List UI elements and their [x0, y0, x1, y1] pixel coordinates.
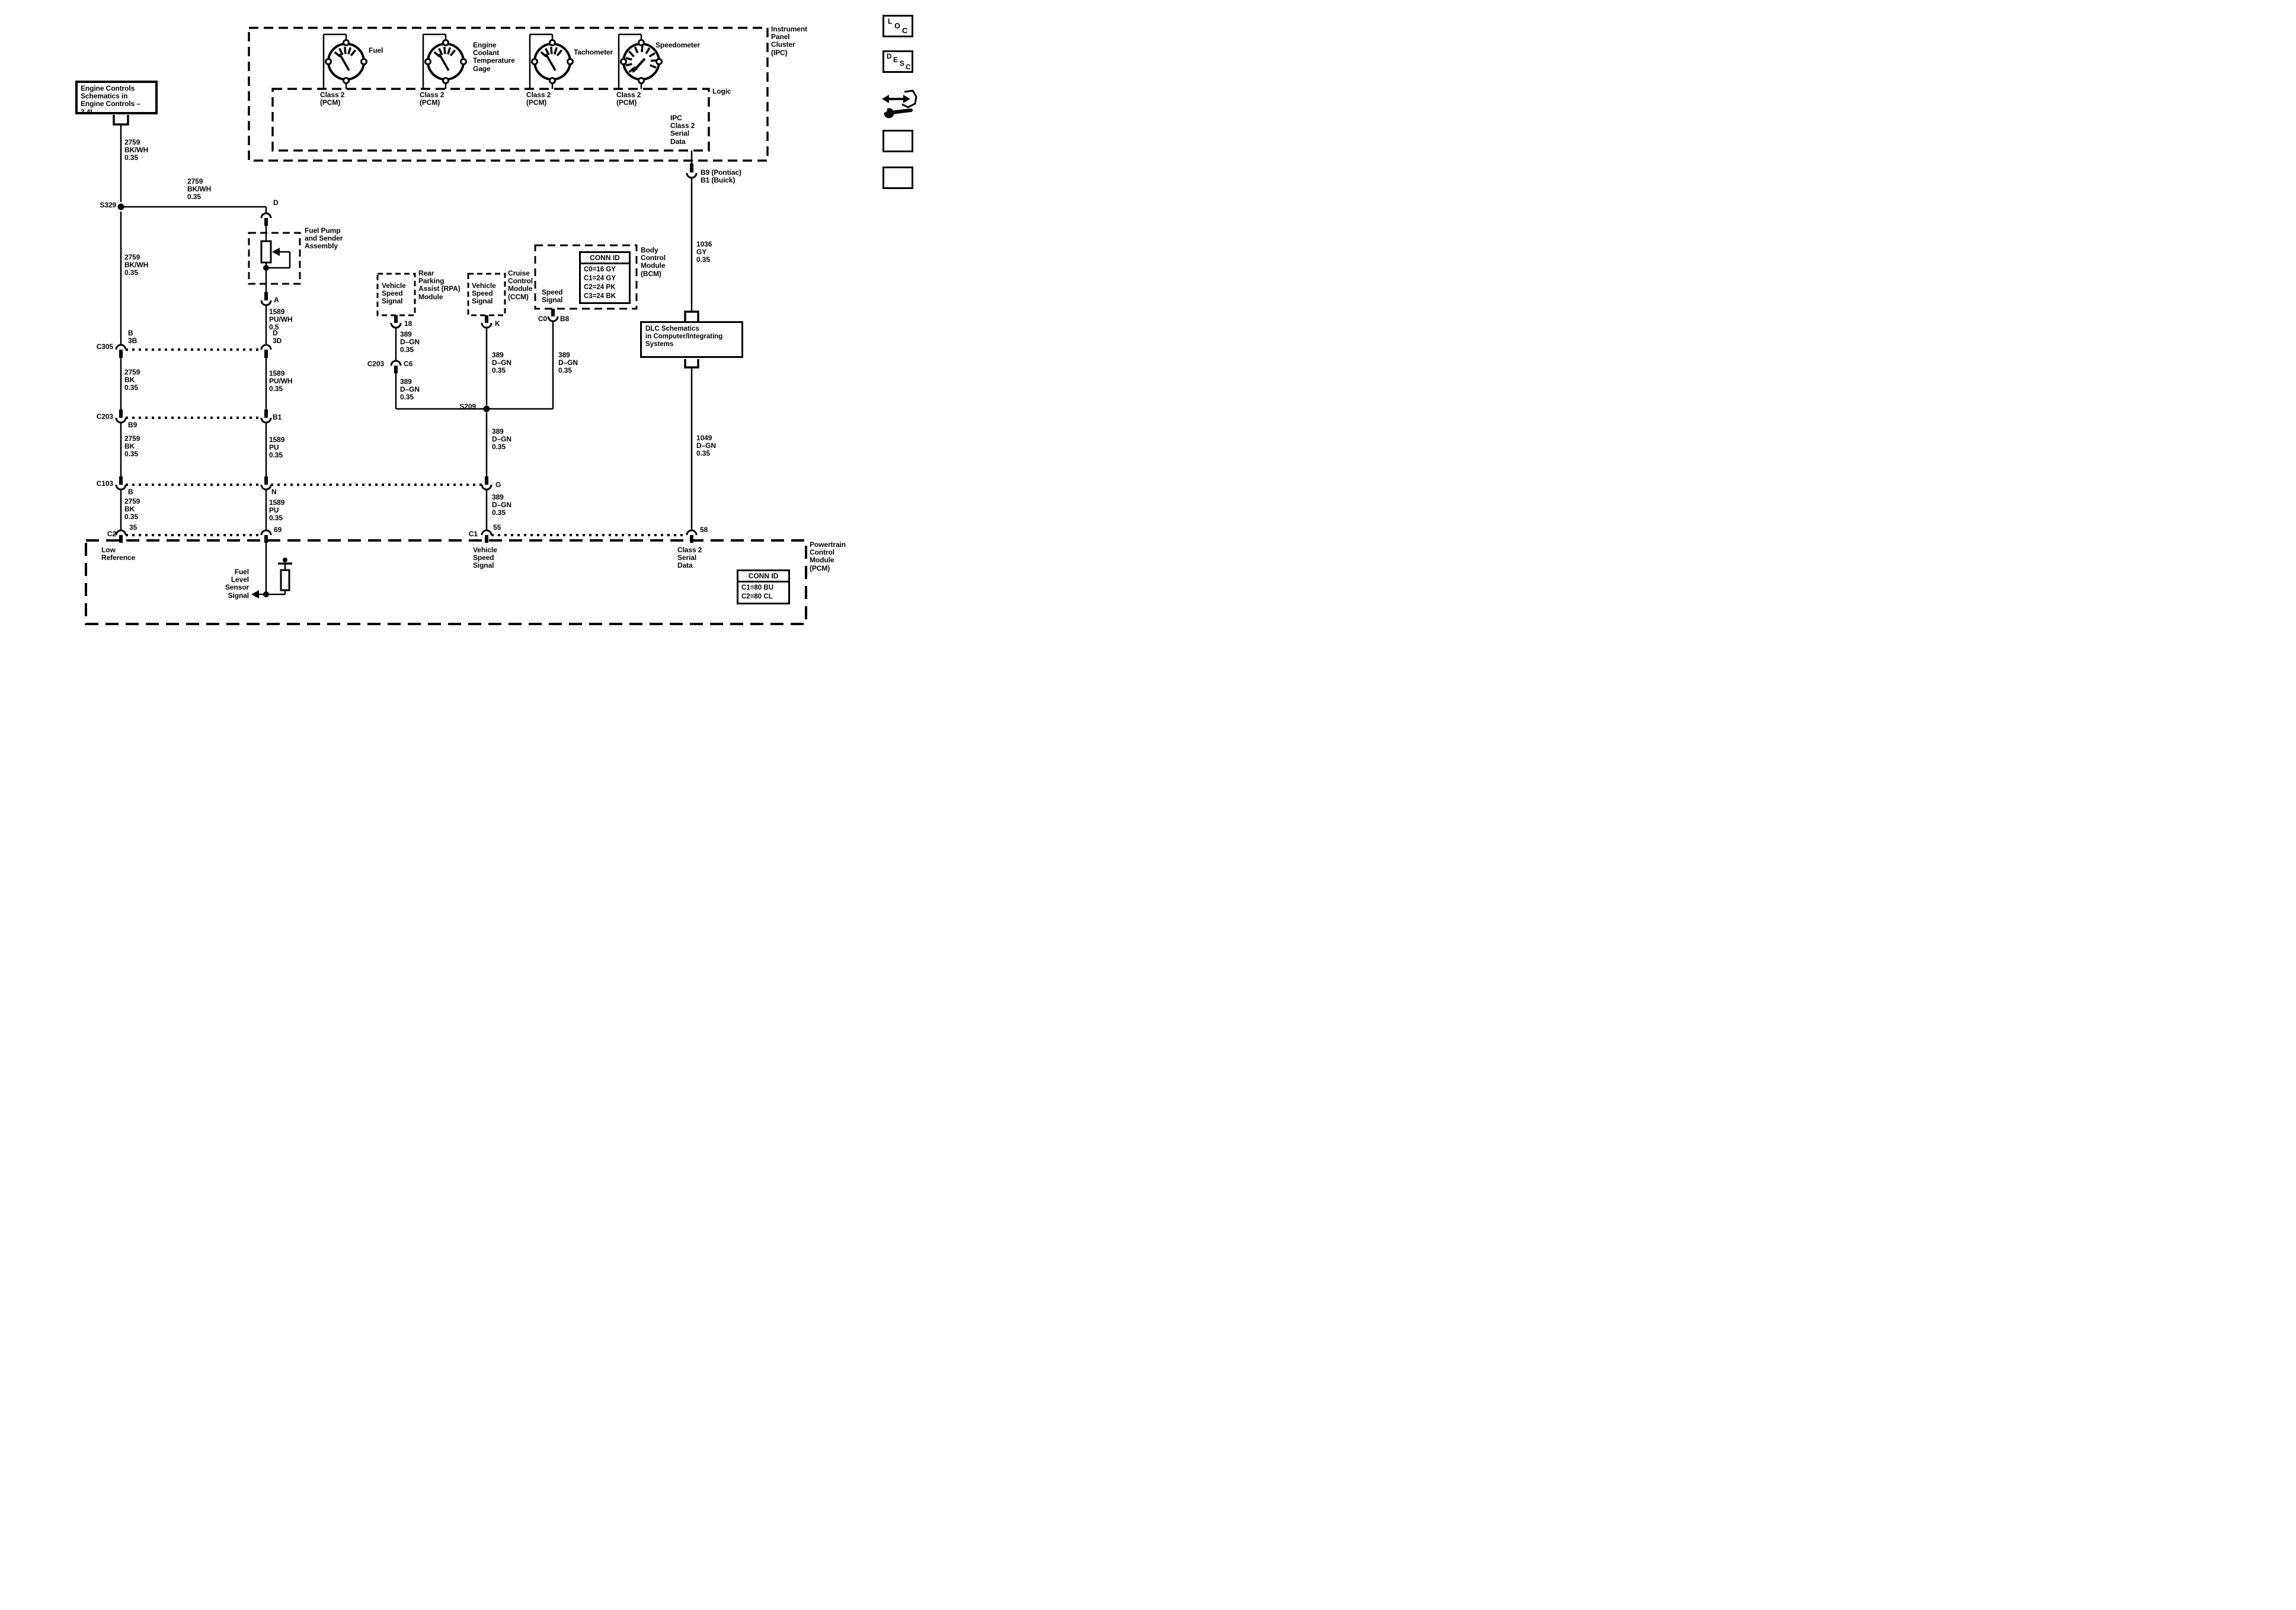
- ipc-title-label: Instrument Panel Cluster (IPC): [771, 25, 807, 57]
- nav-wrench-arrow-icon[interactable]: [881, 91, 916, 119]
- c1-connector-label: C1: [454, 530, 478, 538]
- wire-389-label-b8: 389 D–GN 0.35: [558, 351, 578, 375]
- c103-right-pin-label: N: [271, 488, 277, 496]
- wire-389-label-k: 389 D–GN 0.35: [492, 351, 511, 375]
- loc-button[interactable]: L O C: [882, 15, 913, 37]
- loc-letter-c: C: [902, 27, 907, 34]
- wire-2759-bk-label-1: 2759 BK 0.35: [124, 369, 140, 392]
- loc-letter-l: L: [888, 18, 892, 25]
- ect-gauge-label: Engine Coolant Temperature Gage: [473, 41, 515, 73]
- bcm-conn-id-title: CONN ID: [581, 253, 629, 264]
- wire-2759-bkwh-label-3: 2759 BK/WH 0.35: [124, 254, 148, 277]
- fuel-pump-box: [249, 233, 300, 284]
- wire-1036-label: 1036 GY 0.35: [696, 241, 712, 264]
- ccm-module-label: Cruise Control Module (CCM): [508, 270, 533, 301]
- fuel-pump-label: Fuel Pump and Sender Assembly: [305, 227, 343, 251]
- bcm-conn-id-rows: C0=16 GY C1=24 GY C2=24 PK C3=24 BK: [581, 264, 629, 302]
- wire-1589-pu-label-1: 1589 PU 0.35: [269, 436, 284, 460]
- engine-controls-ref-label: Engine Controls Schematics in Engine Con…: [81, 85, 152, 116]
- pcm-conn-id-title: CONN ID: [738, 571, 788, 582]
- wire-2759-bkwh-label-1: 2759 BK/WH 0.35: [124, 139, 148, 162]
- fuel-gauge-icon: [326, 40, 367, 84]
- c203-right-pin-label: B1: [273, 414, 282, 421]
- wire-2759-bk-label-3: 2759 BK 0.35: [124, 498, 140, 521]
- pin-b8-label: B8: [560, 315, 569, 323]
- wire-389-label-18: 389 D–GN 0.35: [400, 331, 420, 354]
- class2-pcm-label-3: Class 2 (PCM): [526, 91, 551, 107]
- low-reference-label: Low Reference: [101, 546, 135, 562]
- wiring-diagram-canvas: Engine Controls Schematics in Engine Con…: [0, 0, 918, 644]
- c305-right-pin-label: D 3D: [273, 329, 282, 345]
- pin-c0-label: C0: [529, 315, 547, 323]
- c203-c6-connector-label: C203: [358, 360, 384, 368]
- desc-letter-c: C: [906, 63, 911, 71]
- desc-letter-s: S: [900, 60, 904, 67]
- wire-1589-puwh-05-label: 1589 PU/WH 0.5: [269, 308, 293, 332]
- c305-left-pin-label: B 3B: [128, 329, 137, 345]
- engine-controls-ref-box: Engine Controls Schematics in Engine Con…: [75, 81, 158, 114]
- pcm-conn-id-rows: C1=80 BU C2=80 CL: [738, 582, 788, 603]
- c203-left-pin-label: B9: [128, 421, 137, 429]
- pin-k-label: K: [495, 320, 500, 328]
- wire-1049-label: 1049 D–GN 0.35: [696, 434, 716, 458]
- wire-389-label-s209: 389 D–GN 0.35: [492, 428, 511, 452]
- forward-arrow-button[interactable]: [882, 130, 913, 152]
- pin-69-label: 69: [274, 526, 282, 534]
- tachometer-label: Tachometer: [574, 49, 613, 56]
- desc-button[interactable]: D E S C: [882, 50, 913, 73]
- desc-letter-d: D: [887, 53, 892, 60]
- ipc-serial-label: IPC Class 2 Serial Data: [670, 114, 695, 146]
- pin-d-label: D: [273, 199, 279, 207]
- pcm-conn-id-table: CONN ID C1=80 BU C2=80 CL: [737, 569, 790, 604]
- pin-58-label: 58: [700, 526, 708, 534]
- class2-pcm-label-4: Class 2 (PCM): [616, 91, 641, 107]
- c103-connector-label: C103: [89, 480, 113, 488]
- class2-pcm-label-2: Class 2 (PCM): [420, 91, 444, 107]
- wires: [121, 34, 692, 594]
- c2-connector-label: C2: [98, 530, 116, 538]
- dlc-ref-box: DLC Schematics in Computer/Integrating S…: [640, 321, 743, 358]
- c305-connector-label: C305: [89, 343, 113, 351]
- wire-389-label-c6: 389 D–GN 0.35: [400, 378, 420, 402]
- pin-c6-label: C6: [404, 360, 412, 368]
- splice-dots: [118, 204, 490, 598]
- fuel-gauge-label: Fuel: [369, 47, 383, 55]
- wire-2759-bkwh-label-2: 2759 BK/WH 0.35: [187, 178, 211, 201]
- ect-gauge-icon: [426, 40, 466, 84]
- class2-serial-data-label: Class 2 Serial Data: [677, 546, 702, 570]
- wire-1589-pu-label-2: 1589 PU 0.35: [269, 499, 284, 523]
- pcm-module-label: Powertrain Control Module (PCM): [810, 541, 846, 572]
- dlc-ref-label: DLC Schematics in Computer/Integrating S…: [645, 325, 738, 348]
- c103-left-pin-label: B: [128, 488, 133, 496]
- back-arrow-button[interactable]: [882, 167, 913, 189]
- b9-b1-pin-label: B9 (Pontiac) B1 (Buick): [701, 169, 741, 184]
- pin-18-label: 18: [404, 320, 412, 328]
- class2-pcm-label-1: Class 2 (PCM): [320, 91, 344, 107]
- wire-1589-puwh-label: 1589 PU/WH 0.35: [269, 370, 293, 393]
- vehicle-speed-signal-label: Vehicle Speed Signal: [473, 546, 497, 570]
- pin-35-label: 35: [129, 524, 137, 532]
- bcm-conn-id-table: CONN ID C0=16 GY C1=24 GY C2=24 PK C3=24…: [579, 251, 631, 304]
- pin-g-label: G: [495, 481, 501, 489]
- s209-splice-label: S209: [450, 403, 476, 411]
- s329-splice-label: S329: [92, 201, 116, 209]
- loc-letter-o: O: [894, 22, 900, 30]
- desc-letter-e: E: [893, 56, 898, 63]
- speed-signal-label: Speed Signal: [542, 289, 563, 304]
- wire-389-label-g: 389 D–GN 0.35: [492, 494, 511, 517]
- pin-55-label: 55: [493, 524, 501, 532]
- speedometer-label: Speedometer: [655, 41, 700, 49]
- bcm-module-label: Body Control Module (BCM): [641, 247, 666, 278]
- logic-label: Logic: [712, 88, 731, 95]
- vss-rpa-box-label: Vehicle Speed Signal: [382, 282, 406, 306]
- wire-2759-bk-label-2: 2759 BK 0.35: [124, 435, 140, 459]
- rpa-module-label: Rear Parking Assist (RPA) Module: [418, 270, 461, 301]
- pin-a-label: A: [274, 296, 279, 304]
- vss-ccm-box-label: Vehicle Speed Signal: [472, 282, 496, 306]
- tachometer-gauge-icon: [532, 40, 573, 84]
- fuel-level-sensor-signal-label: Fuel Level Sensor Signal: [222, 568, 249, 600]
- c203-connector-label: C203: [89, 413, 113, 421]
